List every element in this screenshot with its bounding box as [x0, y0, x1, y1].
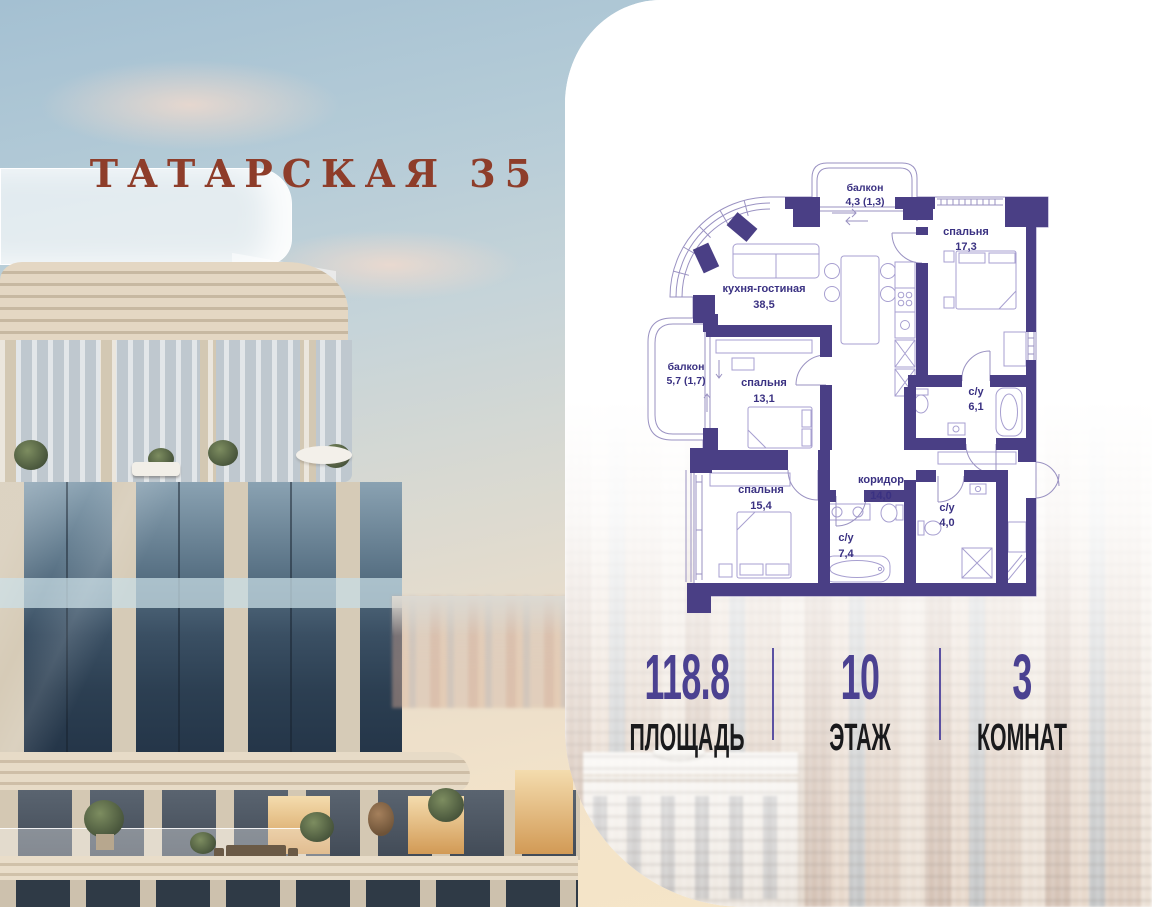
page: ТАТАРСКАЯ 35 [0, 0, 1152, 907]
room-area: 14,0 [870, 490, 891, 502]
stat-rooms: 3 КОМНАТ [912, 645, 1132, 757]
room-label: коридор [858, 474, 904, 486]
building-cornice [0, 262, 348, 340]
stone-band-lower [0, 856, 578, 882]
room-label: с/у [838, 532, 854, 544]
room-area: 6,1 [968, 401, 983, 413]
terrace-plant [14, 440, 48, 470]
glass-reflection-streaks [0, 482, 402, 756]
stat-floor-value: 10 [798, 645, 921, 709]
terrace-lounger [132, 462, 180, 476]
stat-floor-label: ЭТАЖ [798, 719, 921, 757]
terrace-plant [190, 832, 216, 854]
room-label: спальня [738, 484, 784, 496]
room-area: 15,4 [750, 500, 772, 512]
hanging-chair [368, 802, 394, 836]
room-label: балкон [668, 361, 705, 373]
room-area: 38,5 [753, 299, 774, 311]
room-label: спальня [943, 226, 989, 238]
stat-area-value: 118.8 [625, 645, 748, 709]
stat-area-label: ПЛОЩАДЬ [625, 719, 748, 757]
terrace-plant [428, 788, 464, 822]
cloud [40, 60, 340, 150]
terrace-plant [300, 812, 334, 842]
room-area: 4,3 (1,3) [845, 196, 884, 208]
parasol [296, 446, 352, 464]
project-title: ТАТАРСКАЯ 35 [50, 151, 580, 196]
room-area: 13,1 [753, 393, 774, 405]
room-area: 5,7 (1,7) [666, 375, 705, 387]
room-label: кухня-гостиная [722, 283, 805, 295]
terrace-plant [208, 440, 238, 466]
upper-floor-facade [0, 340, 352, 482]
bottom-floor-facade [0, 880, 578, 907]
skyline-haze [392, 596, 570, 636]
stone-band [0, 752, 470, 792]
stat-rooms-value: 3 [960, 645, 1083, 709]
room-area: 7,4 [838, 548, 854, 560]
room-area: 4,0 [939, 517, 954, 529]
floor-plan: балкон 4,3 (1,3) спальня 17,3 кухня-гост… [640, 150, 1060, 625]
stat-rooms-label: КОМНАТ [960, 719, 1083, 757]
room-area: 17,3 [955, 241, 976, 253]
main-glass-facade [0, 482, 402, 756]
room-label: с/у [939, 502, 955, 514]
room-label: балкон [847, 182, 884, 194]
apartment-card[interactable]: балкон 4,3 (1,3) спальня 17,3 кухня-гост… [565, 0, 1152, 907]
room-label: спальня [741, 377, 787, 389]
room-label: с/у [968, 386, 984, 398]
plant-pot [96, 834, 114, 850]
terrace-plant [84, 800, 124, 838]
